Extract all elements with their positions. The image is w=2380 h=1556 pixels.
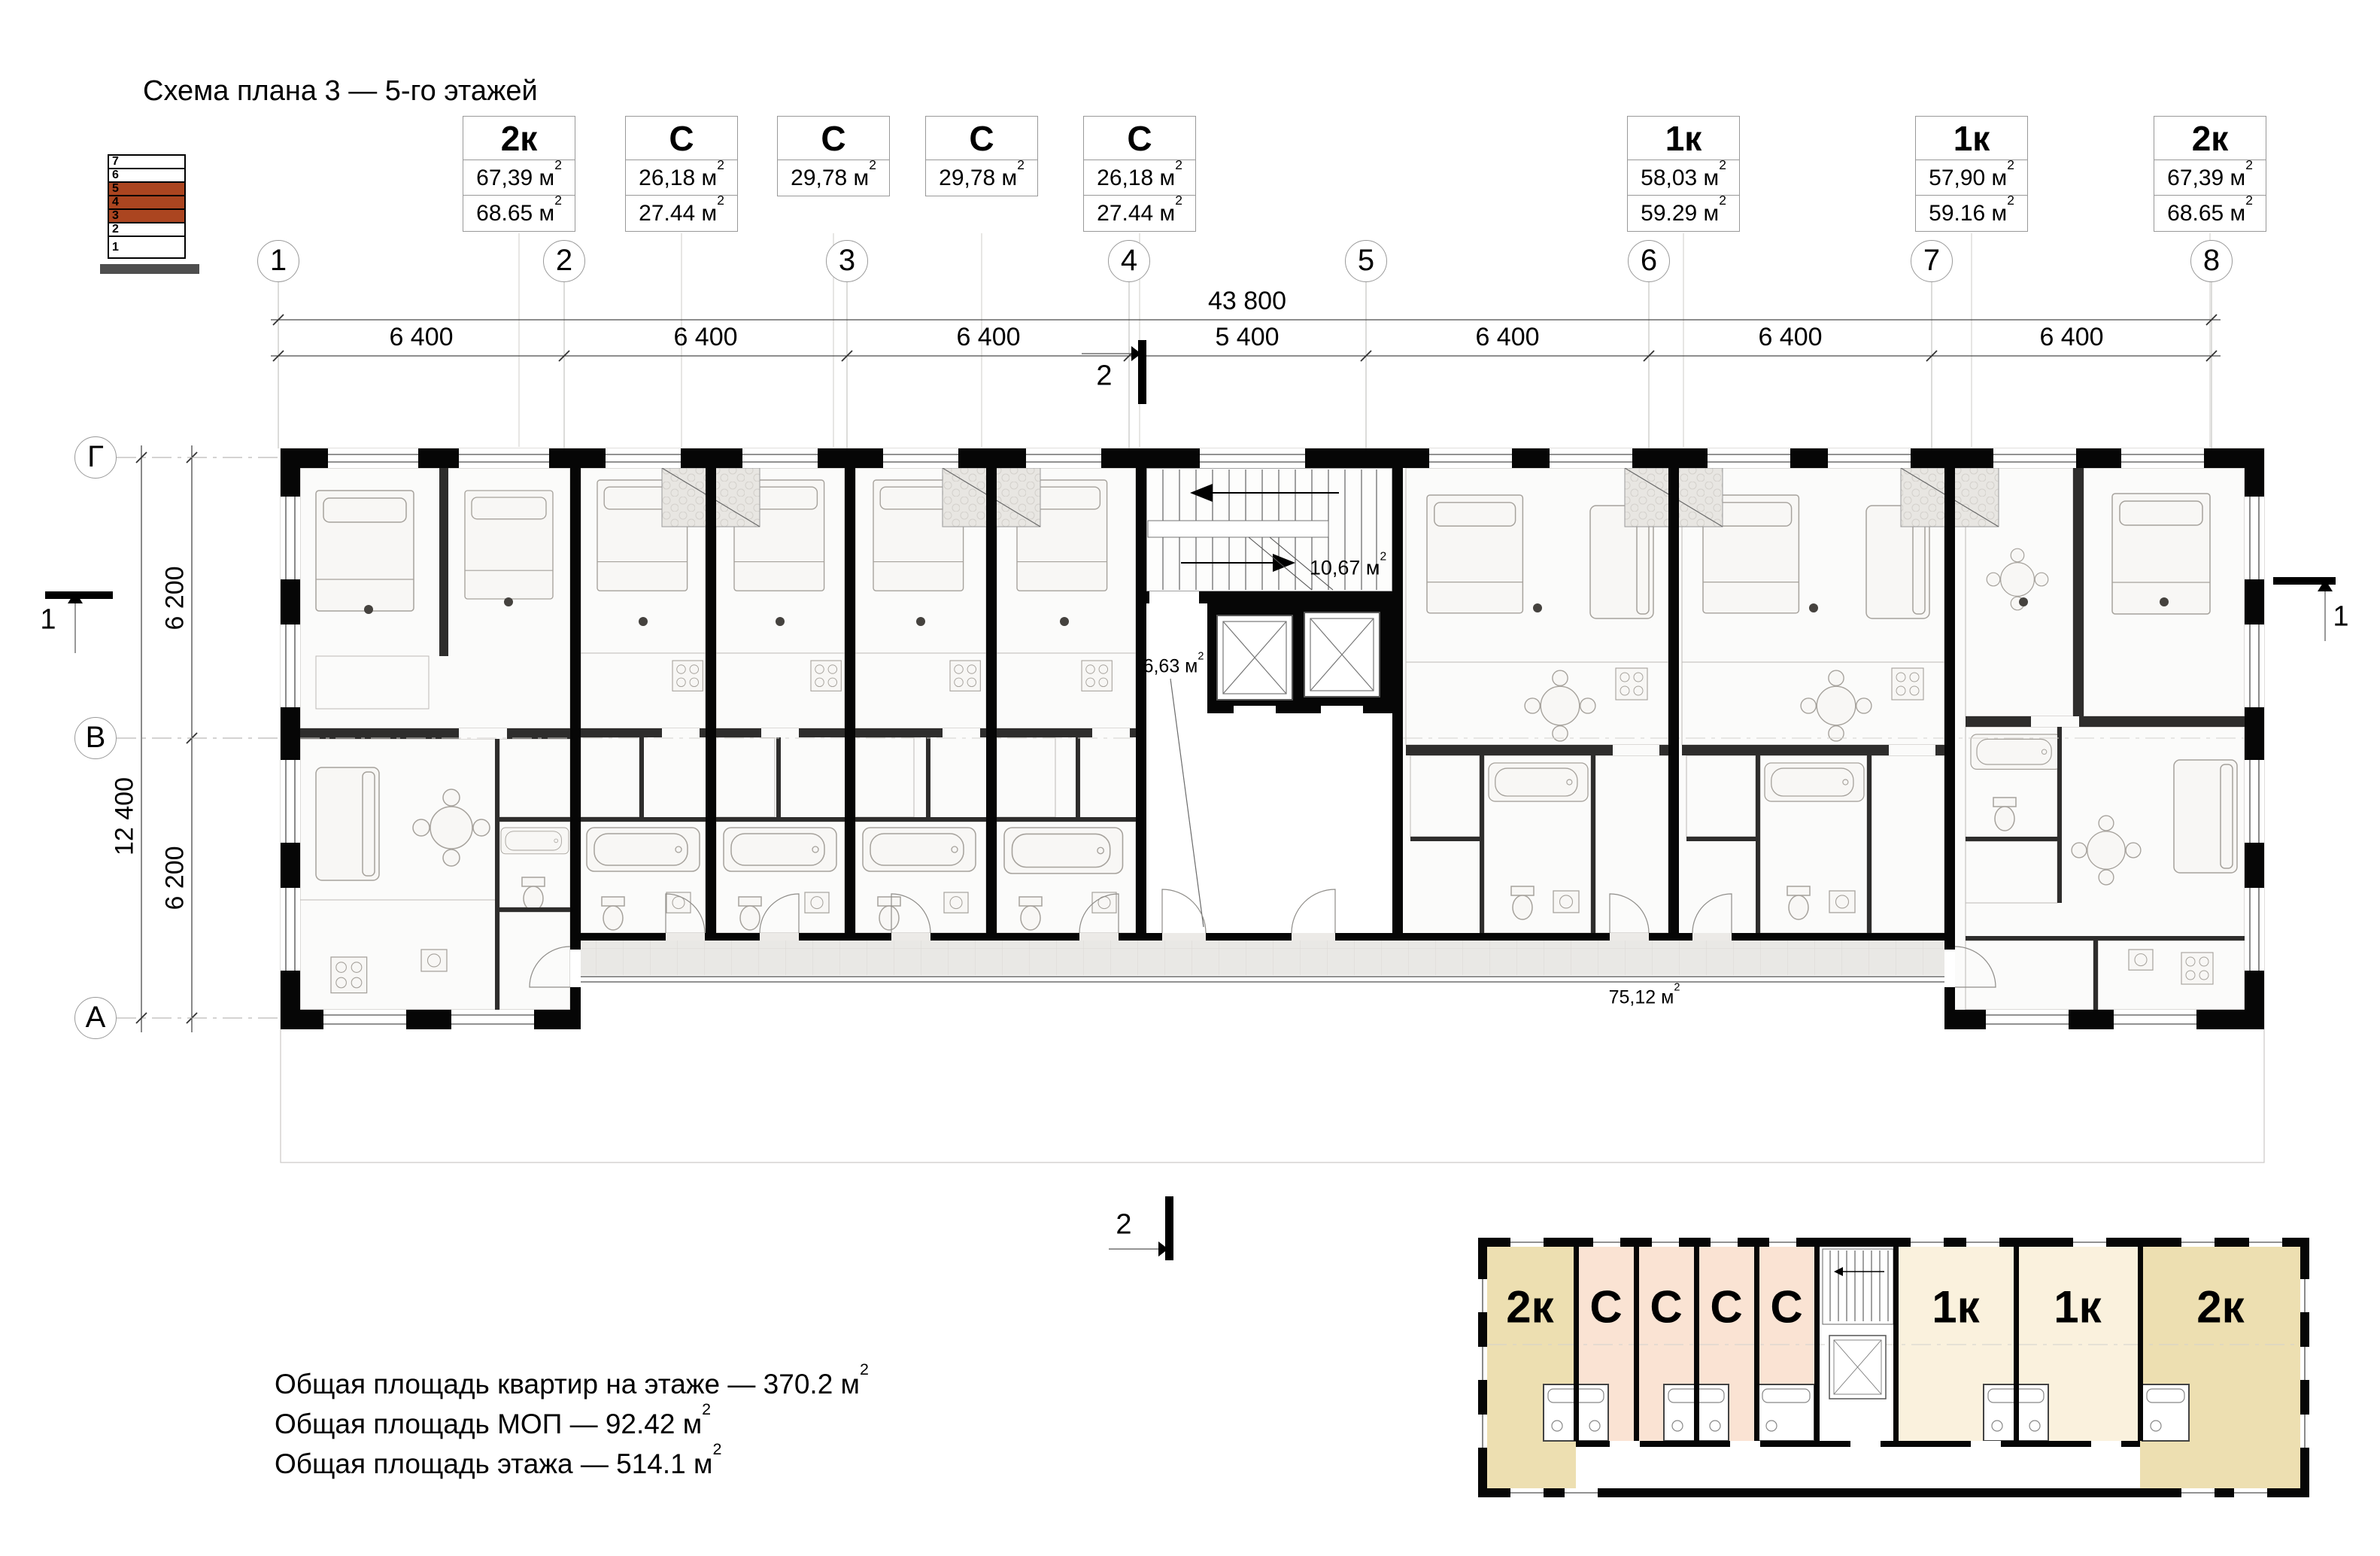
dim-total-height: 12 400: [111, 777, 140, 855]
unit-area: 26,18 м2: [626, 160, 737, 196]
unit-type: 2к: [463, 117, 575, 160]
stair-area-label: 10,67 м2: [1310, 557, 1386, 580]
unit-type: С: [1084, 117, 1195, 160]
floor-indicator-base: [100, 264, 199, 274]
dim-segment-4: 5 400: [1215, 323, 1279, 352]
dim-segment-2: 6 400: [673, 323, 737, 352]
floor-number: 5: [112, 183, 119, 195]
bathtub: [501, 828, 569, 854]
dim-segment-3: 6 400: [956, 323, 1020, 352]
main-plan: [281, 448, 2264, 1029]
dim-segment-6: 6 400: [1758, 323, 1822, 352]
bathtub: [587, 828, 700, 871]
summary-floor-area: Общая площадь этажа — 514.1 м2: [275, 1448, 721, 1480]
page-title: Схема плана 3 — 5-го этажей: [143, 75, 538, 108]
sink: [1829, 891, 1855, 913]
elevator: [1217, 615, 1292, 700]
unit-type: С: [926, 117, 1037, 160]
bathtub: [1765, 763, 1864, 801]
unit-type: 1к: [1628, 117, 1739, 160]
pendant-light: [364, 605, 373, 614]
bed: [465, 491, 553, 599]
dim-total-width: 43 800: [1208, 287, 1286, 316]
toilet: [1019, 897, 1042, 930]
floor-number: 7: [112, 156, 119, 168]
dim-height-segment-1: 6 200: [161, 566, 190, 630]
floor-row-3-highlighted: 3: [108, 208, 186, 223]
dim-segment-5: 6 400: [1475, 323, 1539, 352]
bathtub: [1004, 828, 1123, 874]
toilet: [602, 897, 624, 930]
unit-area: 29,78 м2: [778, 160, 889, 196]
floor-row-2: 2: [108, 222, 186, 237]
elevator: [1829, 1336, 1886, 1399]
toilet: [878, 897, 900, 930]
pendant-light: [1809, 603, 1818, 612]
unit-label-box-1k-1: 1к 58,03 м2 59.29 м2: [1627, 116, 1740, 232]
floor-number: 2: [112, 223, 119, 236]
section-mark-2-top: 2: [1096, 360, 1112, 393]
unit-type: С: [778, 117, 889, 160]
floor-plan-sheet: Схема плана 3 — 5-го этажей 7 6 5 4 3 2 …: [0, 0, 2380, 1556]
pendant-light: [1533, 603, 1542, 612]
floor-row-1: 1: [108, 236, 186, 259]
stair-core: [1146, 468, 1392, 933]
unit-label-box-2k-2: 2к 67,39 м2 68.65 м2: [2154, 116, 2266, 232]
unit-label-box-s-4: С 26,18 м2 27.44 м2: [1083, 116, 1196, 232]
bathtub: [1971, 734, 2061, 769]
key-plan: [1478, 1238, 2309, 1497]
dim-segment-1: 6 400: [389, 323, 453, 352]
unit-area: 26,18 м2: [1084, 160, 1195, 196]
stove: [1616, 668, 1647, 700]
dim-segment-7: 6 400: [2039, 323, 2103, 352]
elevator: [1304, 612, 1380, 697]
section-mark-1-right: 1: [2333, 601, 2348, 634]
unit-area: 58,03 м2: [1628, 160, 1739, 196]
toilet: [522, 877, 545, 910]
unit-area: 67,39 м2: [2154, 160, 2266, 196]
bed: [2112, 494, 2210, 614]
floor-row-7: 7: [108, 154, 186, 169]
pendant-light: [916, 617, 925, 626]
unit-area: 27.44 м2: [626, 196, 737, 231]
dim-height-segment-2: 6 200: [161, 846, 190, 910]
sink: [944, 892, 968, 913]
sink: [1553, 891, 1579, 913]
stove: [1082, 661, 1112, 691]
section-mark-2-bottom: 2: [1116, 1209, 1131, 1241]
axis-circle-g: Г: [74, 436, 117, 479]
unit-area: 57,90 м2: [1916, 160, 2027, 196]
section-mark-1-left: 1: [40, 604, 56, 637]
bed: [1427, 495, 1522, 613]
pendant-light: [639, 617, 648, 626]
floor-row-5-highlighted: 5: [108, 181, 186, 196]
pendant-light: [2160, 597, 2169, 606]
axis-circle-5: 5: [1345, 240, 1387, 282]
axis-circle-6: 6: [1628, 240, 1670, 282]
floor-row-4-highlighted: 4: [108, 195, 186, 210]
axis-circle-a: А: [74, 997, 117, 1039]
pendant-light: [504, 597, 513, 606]
axis-circle-4: 4: [1108, 240, 1150, 282]
unit-area: 59.16 м2: [1916, 196, 2027, 231]
unit-type: 1к: [1916, 117, 2027, 160]
keyplan-label-2k-right: 2к: [2196, 1281, 2244, 1333]
lobby-area-label: 6,63 м2: [1143, 656, 1204, 678]
unit-label-box-s-1: С 26,18 м2 27.44 м2: [625, 116, 738, 232]
unit-label-box-s-2: С 29,78 м2: [777, 116, 890, 196]
pendant-light: [776, 617, 785, 626]
floor-number: 3: [112, 210, 119, 222]
floor-indicator: 7 6 5 4 3 2 1: [108, 156, 186, 259]
keyplan-label-1k-1: 1к: [1932, 1281, 1979, 1333]
summary-mop-area: Общая площадь МОП — 92.42 м2: [275, 1409, 711, 1440]
stove: [811, 661, 841, 691]
bathtub: [724, 828, 836, 871]
kitchen-sink: [421, 950, 447, 971]
bed: [316, 491, 414, 611]
unit-area: 68.65 м2: [463, 196, 575, 231]
bathtub: [863, 828, 976, 871]
keyplan-label-s-3: С: [1710, 1281, 1742, 1333]
unit-area: 59.29 м2: [1628, 196, 1739, 231]
unit-area: 29,78 м2: [926, 160, 1037, 196]
pendant-light: [2019, 597, 2028, 606]
floor-number: 4: [112, 196, 119, 208]
stove: [2181, 953, 2213, 984]
floor-row-6: 6: [108, 168, 186, 183]
stove: [331, 957, 367, 993]
pendant-light: [1060, 617, 1069, 626]
axis-circle-3: 3: [826, 240, 868, 282]
stove: [950, 661, 980, 691]
toilet: [739, 897, 761, 930]
keyplan-label-s-1: С: [1589, 1281, 1622, 1333]
sofa: [2174, 760, 2237, 873]
floor-number: 6: [112, 169, 119, 181]
unit-label-box-2k-1: 2к 67,39 м2 68.65 м2: [463, 116, 575, 232]
unit-area: 68.65 м2: [2154, 196, 2266, 231]
floor-number: 1: [112, 242, 119, 254]
axis-circle-1: 1: [257, 240, 299, 282]
sofa: [316, 767, 379, 880]
sink: [1092, 892, 1116, 913]
keyplan-label-s-2: С: [1650, 1281, 1682, 1333]
floor-plan-drawing: [0, 0, 2380, 1556]
unit-type: 2к: [2154, 117, 2266, 160]
axis-circle-8: 8: [2190, 240, 2233, 282]
sink: [805, 892, 829, 913]
corridor-area-label: 75,12 м2: [1609, 987, 1680, 1009]
unit-area: 67,39 м2: [463, 160, 575, 196]
unit-type: С: [626, 117, 737, 160]
axis-circle-7: 7: [1911, 240, 1953, 282]
keyplan-label-1k-2: 1к: [2054, 1281, 2101, 1333]
unit-label-box-1k-2: 1к 57,90 м2 59.16 м2: [1915, 116, 2028, 232]
unit-label-box-s-3: С 29,78 м2: [925, 116, 1038, 196]
keyplan-label-s-4: С: [1770, 1281, 1802, 1333]
stove: [672, 661, 703, 691]
axis-circle-2: 2: [543, 240, 585, 282]
toilet: [1511, 886, 1534, 919]
axis-circle-v: В: [74, 717, 117, 759]
toilet: [1993, 798, 2016, 831]
kitchen-sink: [2129, 950, 2153, 970]
keyplan-label-2k-left: 2к: [1506, 1281, 1553, 1333]
stove: [1892, 668, 1923, 700]
unit-area: 27.44 м2: [1084, 196, 1195, 231]
bathtub: [1489, 763, 1588, 801]
toilet: [1787, 886, 1810, 919]
summary-apartments-area: Общая площадь квартир на этаже — 370.2 м…: [275, 1369, 869, 1400]
